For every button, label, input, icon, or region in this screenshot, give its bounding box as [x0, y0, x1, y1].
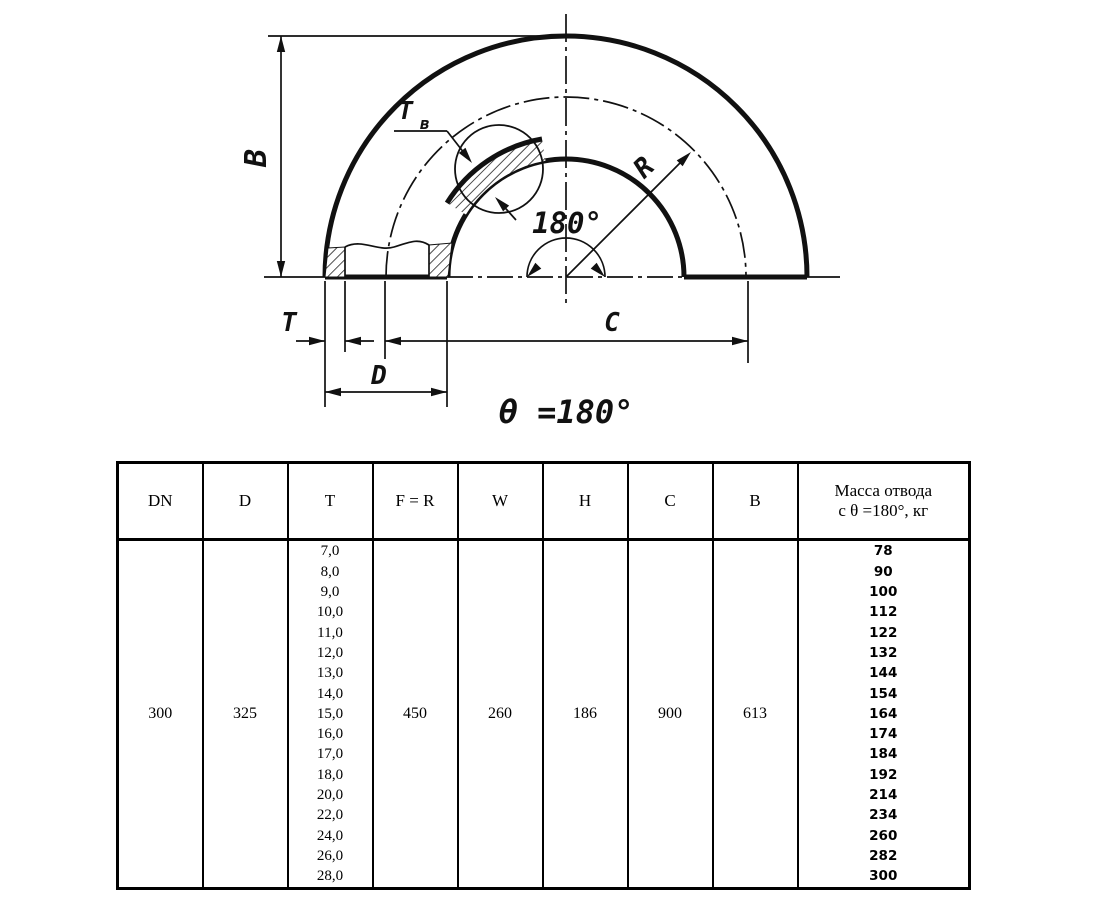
header-mass: Масса отвода с θ =180°, кг	[798, 463, 970, 540]
cell-w: 260	[458, 540, 543, 889]
cell-d: 325	[203, 540, 288, 889]
cell-mass: 7890100112122132144154164174184192214234…	[798, 540, 970, 889]
drawing-canvas: T в R 180° B T C D θ =180°	[0, 0, 1100, 458]
table-cell-value: 14,0	[289, 684, 372, 704]
table-cell-value: 144	[799, 663, 969, 683]
table-cell-value: 28,0	[289, 866, 372, 886]
tv-label-main: T	[398, 96, 414, 125]
header-t: T	[288, 463, 373, 540]
t-arrowhead-right	[345, 337, 361, 345]
table-cell-value: 11,0	[289, 623, 372, 643]
d-arrowhead-right	[431, 388, 447, 396]
cell-b: 613	[713, 540, 798, 889]
header-c-text: C	[664, 491, 675, 510]
d-value: 325	[233, 705, 257, 722]
header-dn: DN	[118, 463, 203, 540]
b-arrowhead-top	[277, 36, 285, 52]
header-h-text: H	[579, 491, 591, 510]
header-d: D	[203, 463, 288, 540]
t-dim-label: T	[281, 308, 298, 338]
table-cell-value: 122	[799, 623, 969, 643]
table-cell-value: 15,0	[289, 704, 372, 724]
header-b: B	[713, 463, 798, 540]
header-t-text: T	[325, 491, 335, 510]
d-arrowhead-left	[325, 388, 341, 396]
dn-value: 300	[148, 705, 172, 722]
table-cell-value: 17,0	[289, 744, 372, 764]
cell-h: 186	[543, 540, 628, 889]
data-row: 300 325 7,08,09,010,011,012,013,014,015,…	[118, 540, 970, 889]
cell-t: 7,08,09,010,011,012,013,014,015,016,017,…	[288, 540, 373, 889]
theta-caption: θ =180°	[499, 393, 634, 431]
table-cell-value: 192	[799, 765, 969, 785]
mass-values-list: 7890100112122132144154164174184192214234…	[799, 541, 969, 887]
table-cell-value: 164	[799, 704, 969, 724]
c-value: 900	[658, 705, 682, 722]
pipe-bend-drawing: T в R 180° B T C D θ =180°	[0, 0, 1100, 458]
table-cell-value: 24,0	[289, 826, 372, 846]
c-arrowhead-left	[385, 337, 401, 345]
break-wavy-line	[345, 241, 429, 248]
c-dim-label: C	[604, 308, 620, 338]
table-cell-value: 184	[799, 744, 969, 764]
b-dim-label: B	[239, 149, 274, 168]
t-values-list: 7,08,09,010,011,012,013,014,015,016,017,…	[289, 541, 372, 887]
table-cell-value: 78	[799, 541, 969, 561]
header-h: H	[543, 463, 628, 540]
header-dn-text: DN	[148, 491, 173, 510]
header-d-text: D	[239, 491, 251, 510]
dimension-table-wrap: DN D T F = R W H C B Масса отвода с θ =1…	[116, 461, 971, 890]
table-cell-value: 10,0	[289, 602, 372, 622]
cell-fr: 450	[373, 540, 458, 889]
table-cell-value: 112	[799, 602, 969, 622]
table-cell-value: 16,0	[289, 724, 372, 744]
table-cell-value: 234	[799, 805, 969, 825]
c-arrowhead-right	[732, 337, 748, 345]
header-mass-line2: с θ =180°, кг	[799, 501, 969, 521]
angle-label: 180°	[532, 206, 602, 240]
table-cell-value: 7,0	[289, 541, 372, 561]
table-cell-value: 9,0	[289, 582, 372, 602]
left-wall-hatch-outer	[325, 247, 345, 277]
header-row: DN D T F = R W H C B Масса отвода с θ =1…	[118, 463, 970, 540]
table-cell-value: 26,0	[289, 846, 372, 866]
header-fr-text: F = R	[396, 491, 435, 510]
table-cell-value: 214	[799, 785, 969, 805]
b-value: 613	[743, 705, 767, 722]
cell-c: 900	[628, 540, 713, 889]
header-mass-line1: Масса отвода	[799, 481, 969, 501]
header-w-text: W	[492, 491, 508, 510]
table-cell-value: 154	[799, 684, 969, 704]
header-c: C	[628, 463, 713, 540]
header-b-text: B	[749, 491, 760, 510]
table-cell-value: 20,0	[289, 785, 372, 805]
dimension-table: DN D T F = R W H C B Масса отвода с θ =1…	[116, 461, 971, 890]
table-cell-value: 300	[799, 866, 969, 886]
table-cell-value: 12,0	[289, 643, 372, 663]
fr-value: 450	[403, 705, 427, 722]
cell-dn: 300	[118, 540, 203, 889]
t-arrowhead-left	[309, 337, 325, 345]
d-dim-label: D	[370, 361, 387, 391]
table-cell-value: 90	[799, 562, 969, 582]
header-fr: F = R	[373, 463, 458, 540]
left-wall-hatch-inner	[429, 243, 452, 277]
page: { "diagram": { "dim_b": "B", "dim_t": "T…	[0, 0, 1100, 900]
table-cell-value: 22,0	[289, 805, 372, 825]
table-cell-value: 8,0	[289, 562, 372, 582]
b-arrowhead-bottom	[277, 261, 285, 277]
table-cell-value: 13,0	[289, 663, 372, 683]
table-cell-value: 100	[799, 582, 969, 602]
table-cell-value: 132	[799, 643, 969, 663]
header-w: W	[458, 463, 543, 540]
table-cell-value: 282	[799, 846, 969, 866]
table-cell-value: 18,0	[289, 765, 372, 785]
w-value: 260	[488, 705, 512, 722]
table-cell-value: 260	[799, 826, 969, 846]
table-cell-value: 174	[799, 724, 969, 744]
h-value: 186	[573, 705, 597, 722]
